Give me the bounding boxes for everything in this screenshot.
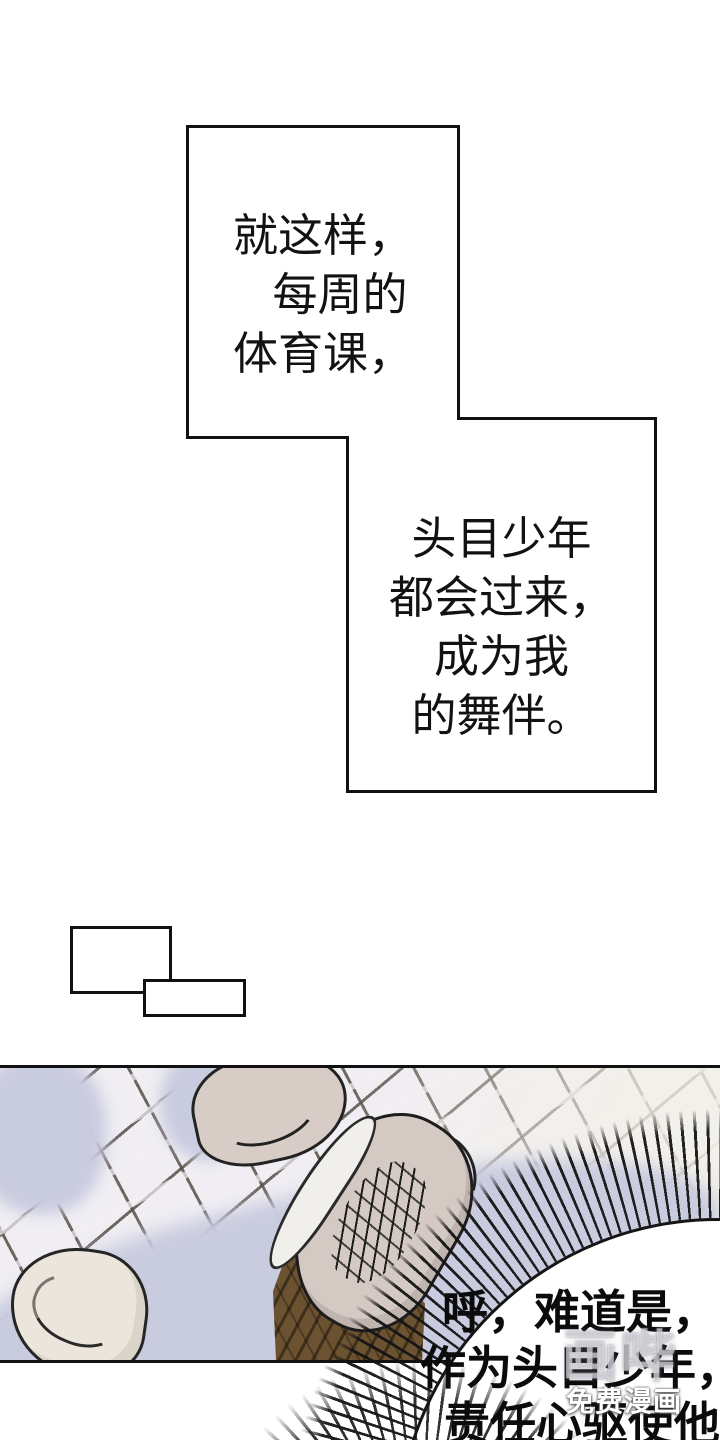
narration-box-1-text: 就这样， 每周的 体育课， [189, 128, 457, 383]
narration-box-2: 头目少年 都会过来， 成为我 的舞伴。 [346, 417, 657, 793]
narration-box-2-border-right [654, 417, 657, 793]
narration-line: 每周的 [206, 265, 474, 324]
comic-page: 就这样， 每周的 体育课， 头目少年 都会过来， 成为我 的舞伴。 [0, 0, 720, 1440]
narration-line: 就这样， [189, 206, 457, 265]
narration-box-2-border-top [457, 417, 657, 420]
watermark-label: 免费漫画 [566, 1380, 682, 1420]
narration-line: 成为我 [346, 627, 657, 686]
empty-panel-2 [143, 979, 246, 1017]
narration-box-2-text: 头目少年 都会过来， 成为我 的舞伴。 [346, 417, 657, 745]
narration-line: 都会过来， [346, 568, 657, 627]
narration-line: 头目少年 [346, 509, 657, 568]
narration-box-1: 就这样， 每周的 体育课， [186, 125, 460, 439]
narration-line: 的舞伴。 [346, 686, 657, 745]
narration-box-2-border-bottom [346, 790, 657, 793]
narration-box-2-border-left [346, 436, 349, 793]
panel-top-border [0, 1065, 720, 1068]
shoe-detail-line [22, 1262, 135, 1360]
floor-shadow [0, 1068, 106, 1214]
narration-line: 体育课， [189, 324, 457, 383]
